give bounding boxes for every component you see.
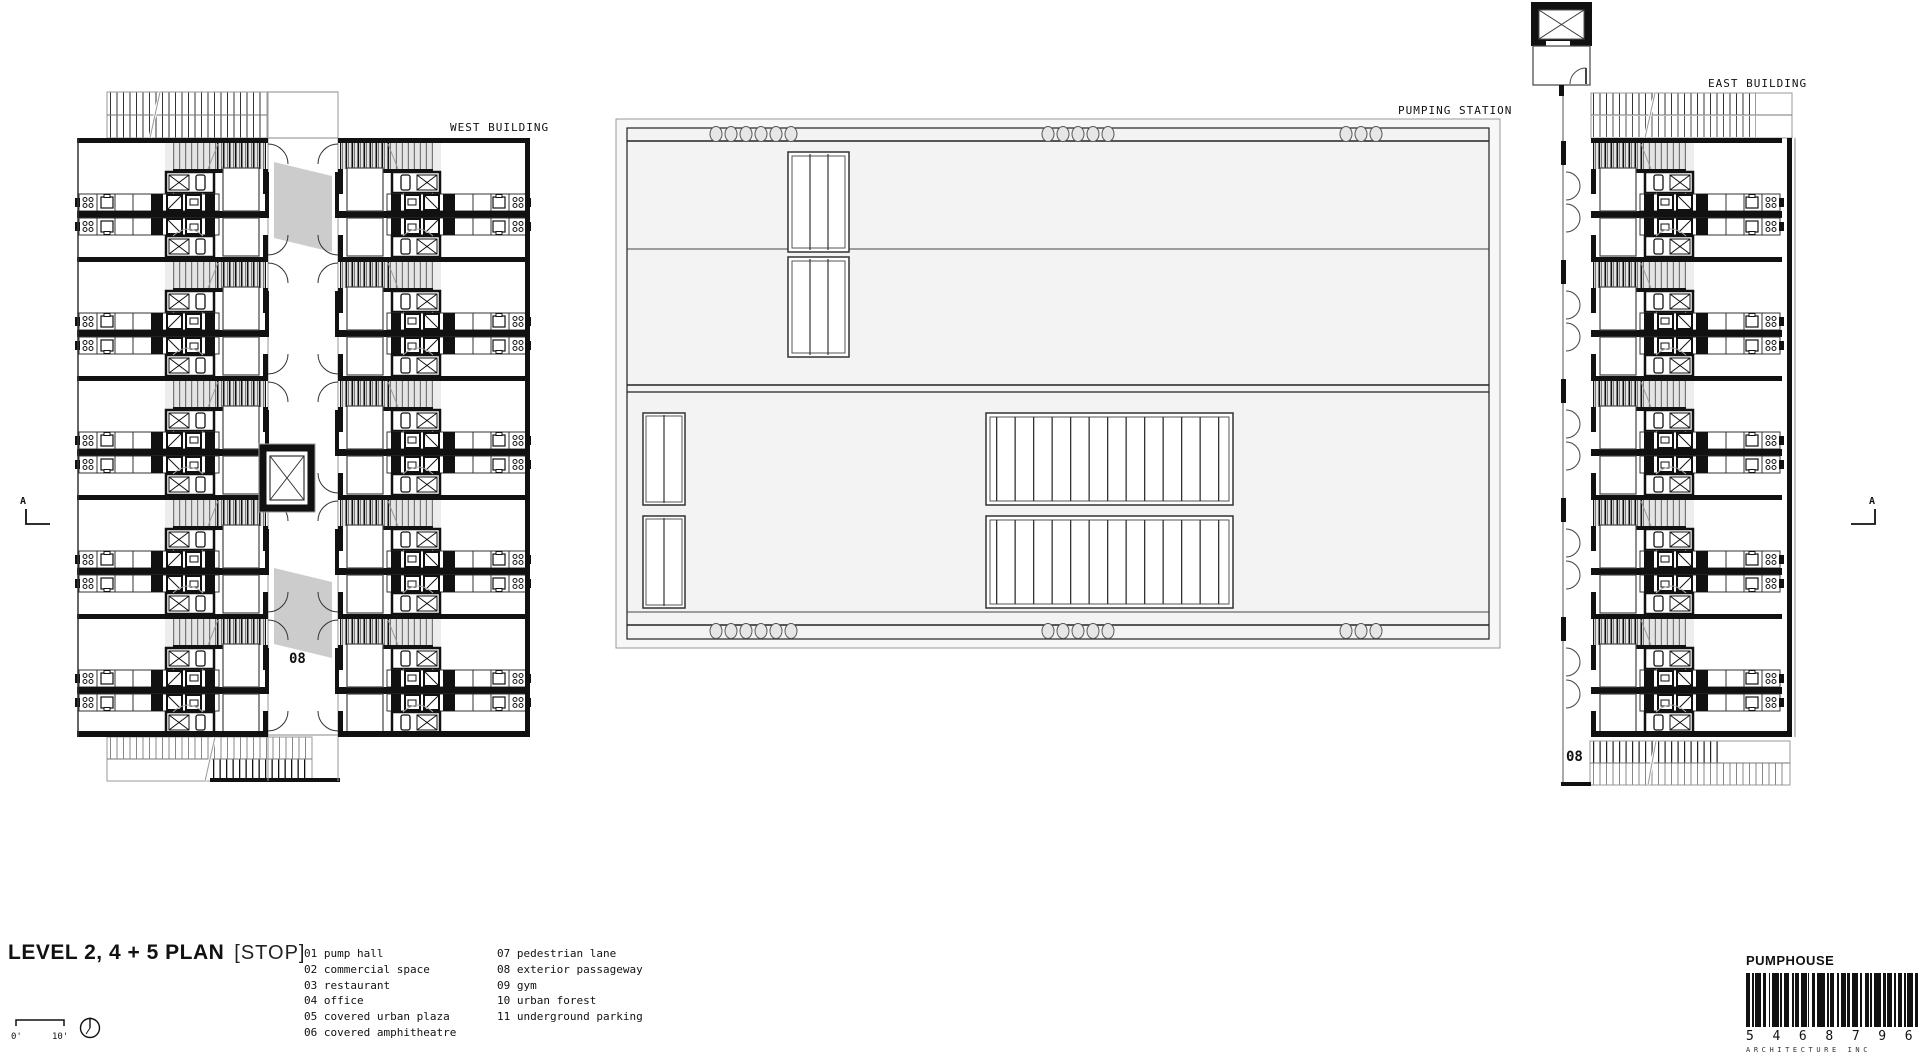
scale-ten-label: 10'	[52, 1032, 68, 1042]
east-building-plan: 08	[1561, 93, 1795, 786]
scale-zero-label: 0'	[11, 1032, 22, 1042]
passage-number-east: 08	[1566, 749, 1583, 765]
page-title-suffix: [STOP]	[234, 942, 305, 964]
legend-item: 09 gym	[497, 978, 643, 994]
page-title: LEVEL 2, 4 + 5 PLAN	[8, 941, 224, 964]
passage-number-west: 08	[289, 651, 306, 667]
legend-item: 05 covered urban plaza	[304, 1009, 456, 1025]
ramp-shade	[274, 162, 332, 252]
elevator-shaft	[259, 444, 315, 512]
firm-name: PUMPHOUSE	[1746, 953, 1834, 968]
legend-item: 04 office	[304, 993, 456, 1009]
legend-item: 07 pedestrian lane	[497, 946, 643, 962]
legend-item: 03 restaurant	[304, 978, 456, 994]
east-building-label: EAST BUILDING	[1708, 77, 1807, 90]
stair-elevator-detail	[1531, 2, 1592, 96]
legend-item: 10 urban forest	[497, 993, 643, 1009]
west-building-plan: 08	[75, 92, 531, 782]
legend-item: 11 underground parking	[497, 1009, 643, 1025]
legend-column-1: 01 pump hall 02 commercial space 03 rest…	[304, 946, 456, 1041]
svg-text:A: A	[20, 496, 26, 507]
legend-item: 08 exterior passageway	[497, 962, 643, 978]
legend-item: 06 covered amphitheatre	[304, 1025, 456, 1041]
pumping-station-label: PUMPING STATION	[1398, 104, 1512, 117]
legend-item: 02 commercial space	[304, 962, 456, 978]
ramp-shade	[274, 568, 332, 658]
floor-plan-drawing: 08	[0, 0, 1920, 1061]
legend-item: 01 pump hall	[304, 946, 456, 962]
firm-caption: ARCHITECTURE INC	[1746, 1046, 1920, 1054]
section-marker-right: A	[1851, 496, 1875, 524]
svg-text:A: A	[1869, 496, 1875, 507]
drawing-sheet: 08	[0, 0, 1920, 1061]
west-building-label: WEST BUILDING	[450, 121, 549, 134]
title-block: LEVEL 2, 4 + 5 PLAN[STOP]	[8, 941, 306, 965]
legend-column-2: 07 pedestrian lane 08 exterior passagewa…	[497, 946, 643, 1025]
barcode-number: 5 4 6 8 7 9 6	[1746, 1029, 1920, 1044]
pumping-station-plan	[616, 119, 1500, 648]
scale-bar: 0' 10'	[11, 1020, 68, 1042]
north-arrow-icon	[81, 1018, 100, 1038]
section-marker-left: A	[20, 496, 50, 524]
